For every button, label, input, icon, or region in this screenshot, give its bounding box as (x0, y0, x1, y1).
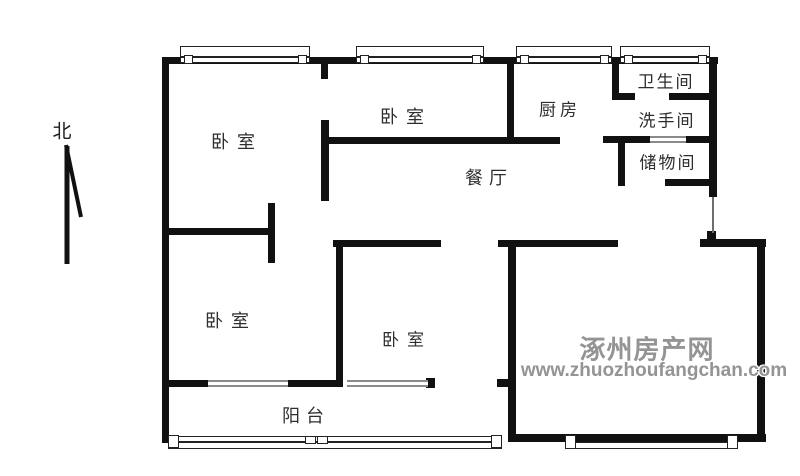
wall-segment (497, 379, 508, 387)
wall-thin-line (712, 197, 714, 233)
wall-segment (162, 380, 208, 387)
balcony-railing-cap (491, 435, 502, 448)
wall-segment (757, 239, 765, 442)
window-top-kitchen (516, 46, 612, 63)
wall-segment (336, 243, 343, 387)
window-top-bedroom-left-midline (181, 56, 309, 58)
wall-segment (685, 136, 712, 143)
window-bottom-living (566, 442, 738, 449)
room-label-balcony: 阳台 (276, 402, 330, 428)
room-label-bathroom: 卫生间 (636, 68, 695, 93)
room-label-kitchen: 厨房 (535, 96, 581, 121)
window-bottom-living-cap (727, 435, 738, 449)
wall-segment (709, 57, 717, 197)
window-bottom-living-cap (565, 435, 576, 449)
room-label-bedroom-top-middle: 卧室 (372, 103, 432, 129)
window-top-bathroom-cap (624, 55, 633, 64)
wall-segment (618, 136, 625, 186)
wall-segment (612, 93, 635, 100)
balcony-railing-cap (317, 436, 328, 444)
room-label-washroom: 洗手间 (637, 107, 696, 132)
window-top-bedroom-left-cap (298, 55, 307, 64)
watermark-site-url: www.zhuozhoufangchan.com (521, 360, 787, 382)
balcony-railing-cap (168, 435, 179, 448)
room-label-bedroom-bottom-left: 卧室 (197, 307, 257, 333)
window-top-bedroom-left (180, 46, 310, 63)
window-top-bathroom (620, 46, 710, 63)
window-top-bedroom-middle-midline (357, 56, 483, 58)
wall-segment (321, 57, 328, 79)
window-inline (650, 136, 686, 143)
wall-segment (508, 240, 516, 442)
wall-segment (287, 380, 338, 387)
window-top-bedroom-middle-cap (472, 55, 481, 64)
room-label-bedroom-bottom-middle: 卧室 (374, 326, 432, 351)
wall-segment (322, 137, 560, 144)
room-label-storage-room: 储物间 (638, 149, 697, 174)
wall-segment (507, 57, 514, 144)
window-top-kitchen-midline (517, 56, 611, 58)
floorplan-drawing: 卧室卧室厨房卫生间洗手间储物间餐厅卧室卧室阳台 (0, 0, 800, 476)
wall-segment (665, 179, 712, 186)
window-inline (208, 380, 288, 387)
wall-segment (333, 240, 441, 247)
room-label-bedroom-top-left: 卧室 (203, 128, 263, 154)
window-top-kitchen-cap (600, 55, 609, 64)
window-top-bathroom-midline (621, 56, 709, 58)
window-top-bedroom-middle-cap (360, 55, 369, 64)
balcony-railing-cap (305, 436, 316, 444)
window-top-bathroom-cap (698, 55, 707, 64)
wall-segment (603, 136, 650, 143)
window-inline (347, 380, 428, 387)
wall-segment (162, 228, 272, 235)
wall-segment (321, 120, 329, 201)
wall-segment (268, 203, 275, 263)
window-top-bedroom-left-cap (184, 55, 193, 64)
room-label-dining-room: 餐厅 (459, 164, 513, 190)
wall-segment (669, 93, 712, 100)
balcony-railing-midline (178, 441, 494, 443)
window-top-kitchen-cap (520, 55, 529, 64)
wall-segment (498, 240, 618, 247)
window-top-bedroom-middle (356, 46, 484, 63)
floorplan-screenshot: 北 卧室卧室厨房卫生间洗手间储物间餐厅卧室卧室阳台 涿州房产网 www.zhuo… (0, 0, 800, 476)
